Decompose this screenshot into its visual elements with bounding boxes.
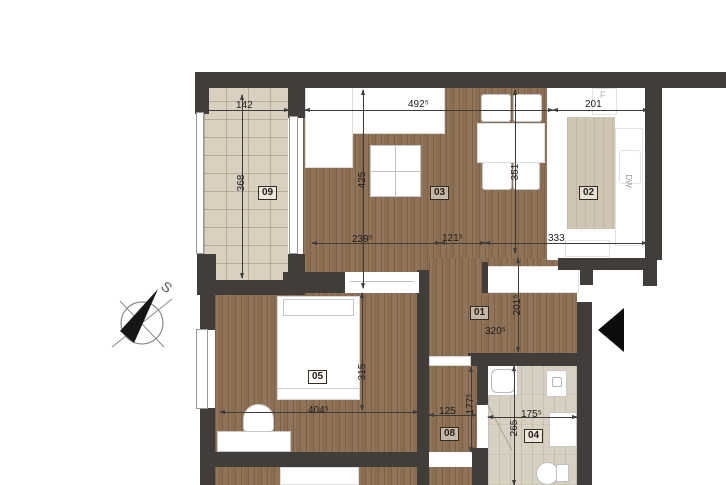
dim-corridor-width: 125 — [439, 406, 456, 417]
wall-living-bedroom — [283, 272, 347, 293]
dim-balcony-width: 142 — [236, 100, 253, 111]
dim-living-seg2: 121⁵ — [442, 233, 463, 244]
dim-line — [312, 243, 440, 244]
window-living-balcony — [289, 116, 298, 254]
door-entrance — [580, 285, 593, 302]
shower-tray — [491, 369, 515, 393]
door-bathroom — [477, 405, 488, 448]
door-corridor — [429, 356, 471, 366]
wall-bathroom-right — [577, 302, 592, 485]
dim-living-depth: 425 — [357, 165, 369, 195]
dim-bedroom-depth: 315 — [357, 357, 369, 387]
compass-south-label: S — [158, 278, 175, 296]
room-label-04: 04 — [524, 429, 543, 443]
dim-line — [553, 110, 648, 111]
washing-machine-door-icon — [552, 377, 562, 387]
room-label-02: 02 — [579, 186, 598, 200]
dim-kitchen-depth: 351 — [510, 157, 522, 187]
dim-corridor-depth: 177⁵ — [465, 389, 477, 419]
door-living-bedroom — [345, 272, 419, 293]
wall-balcony-right-top — [288, 88, 305, 118]
wall-bedroom-bottom — [213, 452, 429, 467]
room-label-01: 01 — [470, 306, 489, 320]
wall-bedroom-left-bottom — [200, 408, 215, 485]
bed-blanket-line — [278, 388, 359, 389]
dim-line — [362, 293, 363, 410]
dining-chair — [481, 94, 511, 122]
dim-living-seg1: 239⁵ — [352, 234, 373, 245]
wall-bathroom-left — [477, 364, 488, 405]
dim-bedroom-width: 404⁵ — [308, 405, 329, 416]
dining-chair — [482, 162, 512, 190]
desk — [217, 431, 291, 452]
kitchen-island — [567, 117, 615, 229]
sofa-arm — [305, 86, 353, 168]
dim-bath-width: 175⁵ — [521, 409, 542, 420]
dim-bath-depth: 265 — [509, 413, 521, 443]
bed-pillow — [283, 299, 354, 316]
room-label-08: 08 — [440, 427, 459, 441]
toilet-tank — [556, 464, 569, 482]
compass-rose: S — [100, 270, 210, 380]
room-label-09: 09 — [258, 186, 277, 200]
dining-chair — [513, 94, 542, 122]
window-balcony-left — [196, 112, 204, 254]
dim-hall-depth: 201⁵ — [512, 290, 524, 320]
dim-kitchen-width: 201 — [585, 99, 602, 110]
entry-closet — [487, 266, 579, 293]
wall-bathroom-left-bottom — [472, 448, 488, 485]
lower-room-furniture — [280, 467, 359, 485]
dishwasher-label: DW — [623, 169, 633, 193]
wall-vestibule-pier — [482, 262, 488, 293]
wall-bedroom-corridor — [417, 270, 429, 485]
dim-living-width: 492⁵ — [408, 99, 429, 110]
desk-chair — [243, 404, 274, 432]
dim-hall-width: 320⁵ — [485, 326, 506, 337]
sliding-door-leaf — [350, 281, 414, 282]
entrance-arrow-icon — [598, 308, 624, 352]
dim-line — [485, 243, 647, 244]
wall-entry-pillar — [643, 258, 657, 286]
room-label-05: 05 — [308, 370, 327, 384]
dim-kitchen-bottom: 333 — [548, 233, 565, 244]
dim-balcony-depth: 368 — [236, 168, 248, 198]
door-lower-room — [429, 452, 472, 467]
coffee-table — [370, 145, 421, 197]
floor-plan: F DW — [0, 0, 726, 485]
room-label-03: 03 — [430, 186, 449, 200]
